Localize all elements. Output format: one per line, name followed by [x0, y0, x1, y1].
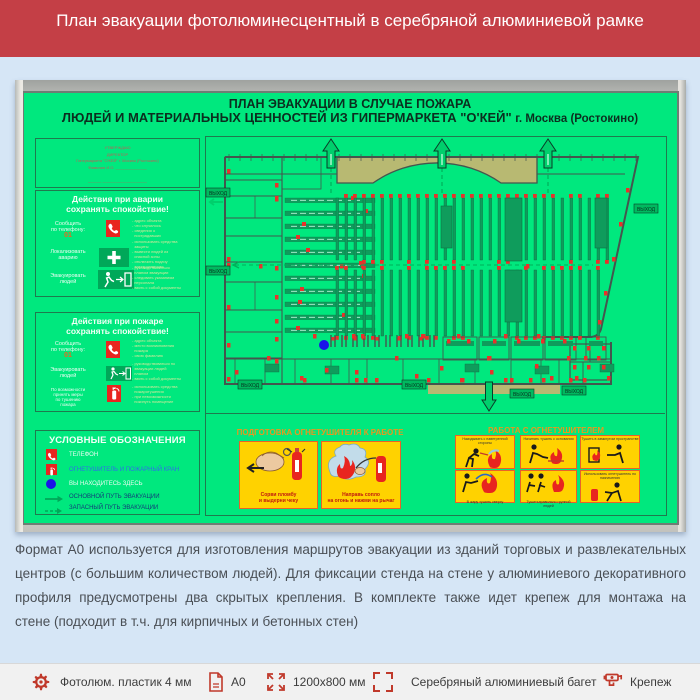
svg-text:ВЫХОД: ВЫХОД [637, 207, 656, 213]
svg-text:ВЫХОД: ВЫХОД [565, 389, 584, 395]
svg-text:ВЫХОД: ВЫХОД [513, 392, 532, 398]
svg-text:ВЫХОД: ВЫХОД [209, 269, 228, 275]
svg-text:ВЫХОД: ВЫХОД [405, 383, 424, 389]
svg-text:ВЫХОД: ВЫХОД [209, 191, 228, 197]
svg-text:ВЫХОД: ВЫХОД [241, 383, 260, 389]
